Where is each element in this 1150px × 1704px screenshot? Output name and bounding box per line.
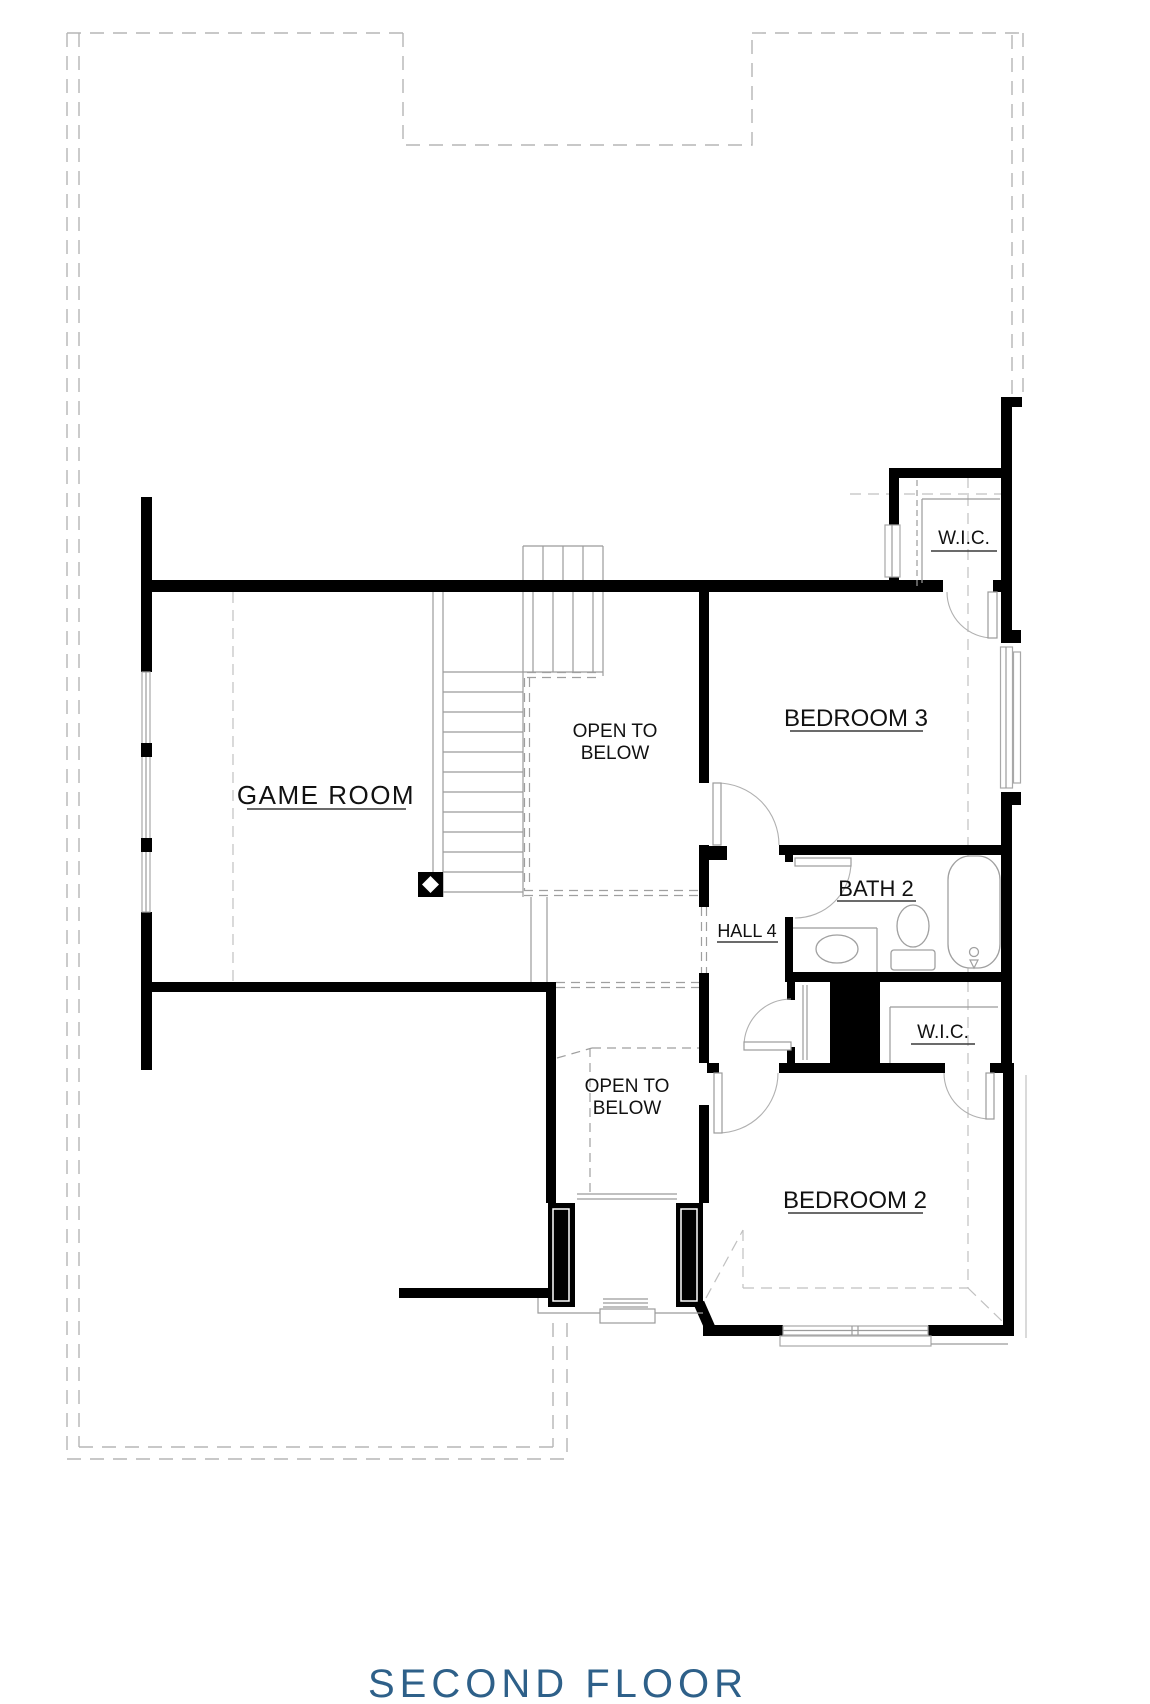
wall-open-below2-west [546,982,556,1203]
open-below-bottom-line1: OPEN TO [585,1076,670,1097]
door-linen [744,999,791,1050]
room-labels: GAME ROOM OPEN TO BELOW BEDROOM 3 W.I.C.… [237,528,997,1214]
room-label-bedroom3: BEDROOM 3 [784,705,928,732]
wall-return-bedroom3-door [709,846,727,860]
wall-bath2-west [785,917,793,973]
open-below-top-line1: OPEN TO [573,721,658,742]
wall-wic1-north [889,468,1012,478]
door-bedroom2 [714,1073,778,1133]
door-wic1 [947,592,997,638]
window-wic1-west [885,525,900,577]
wall-east-middle [1001,792,1012,1063]
room-label-wic-top: W.I.C. [938,528,990,549]
window-bedroom3-east [1001,647,1021,788]
wall-chase [830,977,870,1067]
room-label-game-room: GAME ROOM [237,780,415,810]
toilet [897,905,929,947]
wall-lower-left [399,1288,548,1298]
bath-fixtures [793,856,1000,972]
staircase [418,546,603,982]
floor-plan-page: GAME ROOM OPEN TO BELOW BEDROOM 3 W.I.C.… [0,0,1150,1704]
room-label-bath2: BATH 2 [838,876,913,901]
windows [141,525,1021,1346]
wall-bedroom2-north [779,1063,945,1073]
lot-outline-dashed [67,33,1023,1459]
room-label-wic-bottom: W.I.C. [917,1022,969,1043]
door-wic2 [944,1073,994,1119]
wall-wic2-west [870,982,880,1063]
window-game-room-west [141,672,152,912]
room-label-hall4: HALL 4 [717,921,776,941]
open-below-top-line2: BELOW [581,743,650,764]
wall-bedroom2-south-right [928,1325,1014,1336]
open-below-bottom-line2: BELOW [593,1098,662,1119]
room-label-bedroom2: BEDROOM 2 [783,1187,927,1214]
page-title: SECOND FLOOR [368,1662,748,1704]
toilet-tank [891,950,935,970]
floor-plan-drawing: GAME ROOM OPEN TO BELOW BEDROOM 3 W.I.C.… [0,0,1150,1704]
linen-shelves [803,985,807,1060]
wall-wic1-west-upper [889,468,899,525]
wall-bedroom2-south-left [703,1325,783,1336]
wall-wic1-west-lower [889,577,899,592]
wall-bath2-north [779,845,1011,855]
door-bedroom3 [713,783,779,845]
wall-entry-column-right [676,1203,703,1307]
wall-hall-west-upper [699,845,709,907]
wall-bedroom2-west [699,1105,709,1203]
wall-hall-west-lower [699,973,709,1063]
wall-east-lower [1003,1063,1014,1336]
wall-game-room-south [141,982,556,992]
wall-linen-west-upper [787,982,795,1000]
wall-bath2-south [785,972,1011,982]
wall-entry-column-left [548,1203,575,1307]
wall-east-upper [1001,397,1012,643]
wall-bedroom3-west [699,592,709,783]
wall-north-main [141,580,943,592]
sink [816,935,858,963]
